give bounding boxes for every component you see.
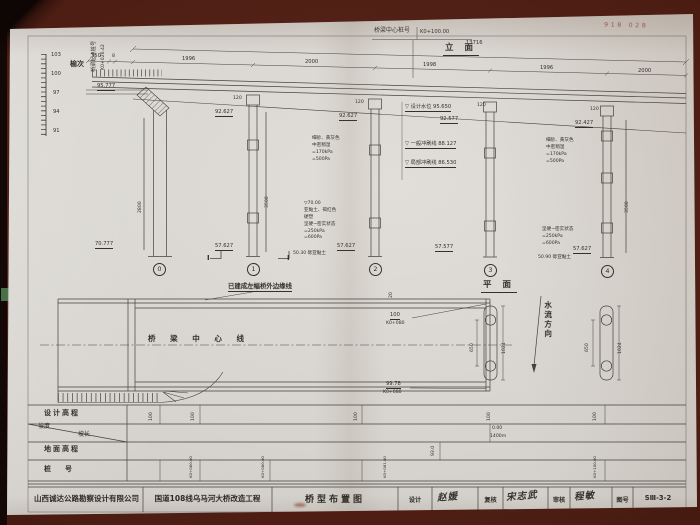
- dim-total: 13716: [466, 41, 483, 47]
- bridge-centerline-label: 桥 梁 中 心 线: [148, 335, 250, 344]
- perforation-stamp: 918 028: [604, 20, 649, 29]
- local-scour-line: ▽ 局部冲刷线 86.530: [405, 161, 456, 168]
- pier1-width-dim: 120: [233, 96, 242, 101]
- pierplan1-length-dim: 1024: [502, 342, 507, 354]
- drawing-number-value: SⅢ-3-2: [633, 494, 683, 502]
- pier2-number: 2: [369, 263, 382, 276]
- stratum-note-2: 50.90 砾亚黏土: [538, 255, 571, 262]
- soil-note-2: ▽70.00 亚黏土、褐红色 硬塑 坚硬~密实状态 =250kPa =600Pa: [304, 201, 336, 242]
- center-pile-label: 桥梁中心桩号: [374, 28, 410, 35]
- abutment-height-dim: 2800: [138, 201, 143, 213]
- check-label: 复核: [478, 495, 503, 504]
- pier1-pile-dim: 3500: [265, 196, 270, 208]
- plan-elev-top: 100: [390, 313, 400, 320]
- pier3-top-elevation: 92.577: [440, 117, 458, 124]
- flow-direction-label: 水流方向: [543, 301, 552, 339]
- dim-span3: 1998: [423, 63, 436, 69]
- general-scour-line: ▽ 一般冲刷线 88.127: [405, 142, 456, 149]
- scale-103: 103: [51, 53, 61, 59]
- table-row-slope: 坡度: [38, 424, 50, 431]
- pier2-bottom-elevation: 57.627: [337, 244, 355, 251]
- ground-elev-value: 93.0: [431, 446, 436, 456]
- design-label: 设计: [398, 495, 432, 504]
- stratum-note-1: 50.30 砾亚黏土: [293, 251, 326, 258]
- soil-note-1: 细砂、黄灰色 中密稍湿 =170kPa =500Pa: [312, 136, 340, 164]
- scale-100: 100: [51, 72, 61, 78]
- review-label: 审核: [548, 495, 570, 504]
- table-row-slope-length: 坡长: [78, 432, 90, 439]
- bridge-start-value: K0+026.42: [101, 44, 106, 70]
- pierplan2-length-dim: 1024: [618, 342, 623, 354]
- photo-of-bridge-drawing: 桥梁中心桩号 K0+100.00 立 面 平 面 设计高程 坡度 坡长 地面高程…: [0, 0, 700, 525]
- pile-number-value-2: K0+080.00: [261, 456, 265, 478]
- abutment-top-elevation: 95.777: [97, 84, 115, 91]
- dim-350: 350: [91, 54, 101, 60]
- dim-span1: 1996: [182, 57, 195, 63]
- pier0-number: 0: [153, 263, 166, 276]
- red-mark: [516, 11, 528, 14]
- plan-view-title: 平 面: [481, 281, 517, 293]
- check-signature: 宋志武: [505, 487, 538, 504]
- drawing-number-label: 图号: [612, 495, 633, 504]
- pier3-bottom-elevation: 57.577: [435, 245, 453, 252]
- design-signature: 赵媛: [436, 488, 458, 504]
- pier4-bottom-elevation: 57.627: [573, 247, 591, 254]
- pier4-pile-dim: 3500: [625, 201, 630, 213]
- dim-span2: 2000: [305, 60, 318, 66]
- drawing-name: 桥型布置图: [274, 492, 396, 505]
- direction-yuci: 榆次: [70, 60, 84, 68]
- design-elev-value-1: 100: [149, 412, 154, 421]
- soil-note-4: 坚硬~密实状态 =250kPa =600Pa: [542, 227, 573, 248]
- section-mark-right: Ⅰ: [287, 254, 290, 262]
- dim-span4: 1996: [540, 66, 553, 72]
- pierplan1-spacing-dim: 650: [470, 343, 475, 352]
- design-elev-value-5: 100: [593, 412, 598, 421]
- pile-number-value-3: K0+081.00: [383, 456, 387, 478]
- plan-elev-bottom: 99.78: [386, 382, 401, 389]
- plan-station-top: K0+080: [386, 321, 405, 326]
- dim-8: 8: [112, 54, 115, 59]
- red-mark: [294, 503, 306, 507]
- plan-dim-20: 20: [389, 292, 394, 298]
- design-elev-value-2: 100: [191, 412, 196, 421]
- section-mark-left: Ⅰ: [207, 254, 210, 262]
- table-row-design-elevation: 设计高程: [44, 409, 80, 417]
- pile-number-value-1: K0+060.00: [189, 456, 193, 478]
- pier1-number: 1: [247, 263, 260, 276]
- pier1-bottom-elevation: 57.627: [215, 244, 233, 251]
- pier2-top-elevation: 92.627: [339, 114, 357, 121]
- plan-station-bottom: K0+080: [383, 390, 402, 395]
- drawing-linework: [0, 0, 700, 525]
- slope-value: 0.00: [492, 426, 502, 431]
- review-signature: 程敏: [573, 487, 595, 503]
- soil-note-3: 细砂、黄灰色 中密稍湿 =170kPa =500Pa: [546, 138, 574, 166]
- center-pile-value: K0+100.00: [420, 30, 449, 36]
- pile-number-value-4: K0+100.00: [593, 456, 597, 478]
- pier3-number: 3: [484, 264, 497, 277]
- table-row-pile-number: 桩 号: [44, 465, 72, 473]
- design-elev-value-4: 100: [487, 412, 492, 421]
- red-mark: [428, 15, 438, 18]
- pier4-width-dim: 120: [590, 107, 599, 112]
- scale-94: 94: [53, 110, 60, 116]
- dim-span5: 2000: [638, 69, 651, 75]
- abutment-bottom-elevation: 70.777: [95, 242, 113, 249]
- pier3-width-dim: 120: [477, 103, 486, 108]
- pier2-width-dim: 120: [355, 100, 364, 105]
- red-mark: [634, 514, 650, 518]
- design-water-level: ▽ 设计水位 95.650: [405, 105, 451, 112]
- slope-length-value: 1400m: [490, 434, 506, 439]
- pier1-top-elevation: 92.627: [215, 110, 233, 117]
- table-row-ground-elevation: 地面高程: [44, 445, 80, 453]
- photo-edge: [0, 0, 7, 525]
- design-elev-value-3: 100: [354, 412, 359, 421]
- project-name: 国道108线乌马河大桥改造工程: [145, 493, 270, 504]
- scale-97: 97: [53, 91, 60, 97]
- drawing-sheet: 桥梁中心桩号 K0+100.00 立 面 平 面 设计高程 坡度 坡长 地面高程…: [0, 0, 700, 525]
- pier4-number: 4: [601, 265, 614, 278]
- scale-91: 91: [53, 129, 60, 135]
- built-edge-label: 已建成左幅桥外边缘线: [228, 283, 292, 292]
- company-name: 山西诚达公路勘察设计有限公司: [30, 493, 143, 504]
- pierplan2-spacing-dim: 650: [585, 343, 590, 352]
- pier4-top-elevation: 92.427: [575, 121, 593, 128]
